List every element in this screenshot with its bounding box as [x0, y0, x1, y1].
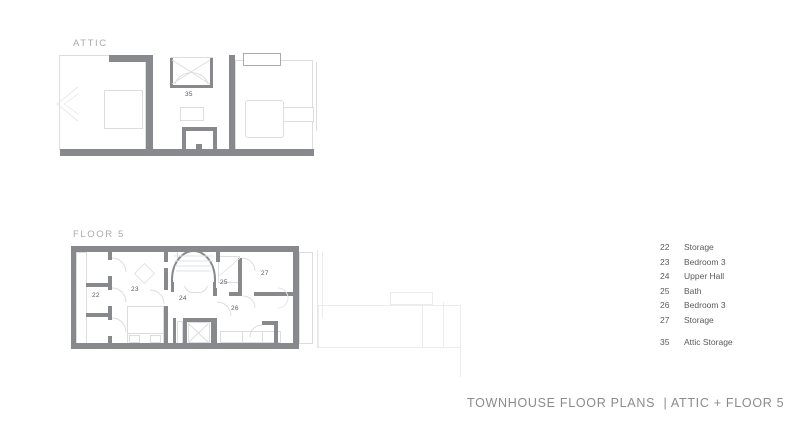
room-legend: 22 Storage 23 Bedroom 3 24 Upper Hall 25… [660, 240, 733, 350]
legend-name: Upper Hall [684, 269, 724, 284]
legend-row: 25 Bath [660, 284, 733, 299]
legend-number: 35 [660, 335, 684, 350]
legend-row: 26 Bedroom 3 [660, 298, 733, 313]
legend-name: Storage [684, 313, 714, 328]
legend-name: Attic Storage [684, 335, 733, 350]
legend-name: Bedroom 3 [684, 298, 726, 313]
legend-row: 22 Storage [660, 240, 733, 255]
legend-number: 26 [660, 298, 684, 313]
sheet-title: TOWNHOUSE FLOOR PLANS | ATTIC + FLOOR 5 [467, 396, 784, 410]
legend-row: 27 Storage [660, 313, 733, 328]
floor-plan-sheet: ATTIC 35 FLOOR 5 [0, 0, 800, 439]
legend-row: 23 Bedroom 3 [660, 255, 733, 270]
legend-name: Bedroom 3 [684, 255, 726, 270]
legend-number: 22 [660, 240, 684, 255]
legend-number: 23 [660, 255, 684, 270]
plan-curves-overlay [0, 0, 800, 439]
legend-row: 35 Attic Storage [660, 335, 733, 350]
legend-row: 24 Upper Hall [660, 269, 733, 284]
legend-name: Bath [684, 284, 702, 299]
legend-number: 25 [660, 284, 684, 299]
legend-name: Storage [684, 240, 714, 255]
legend-number: 27 [660, 313, 684, 328]
legend-number: 24 [660, 269, 684, 284]
